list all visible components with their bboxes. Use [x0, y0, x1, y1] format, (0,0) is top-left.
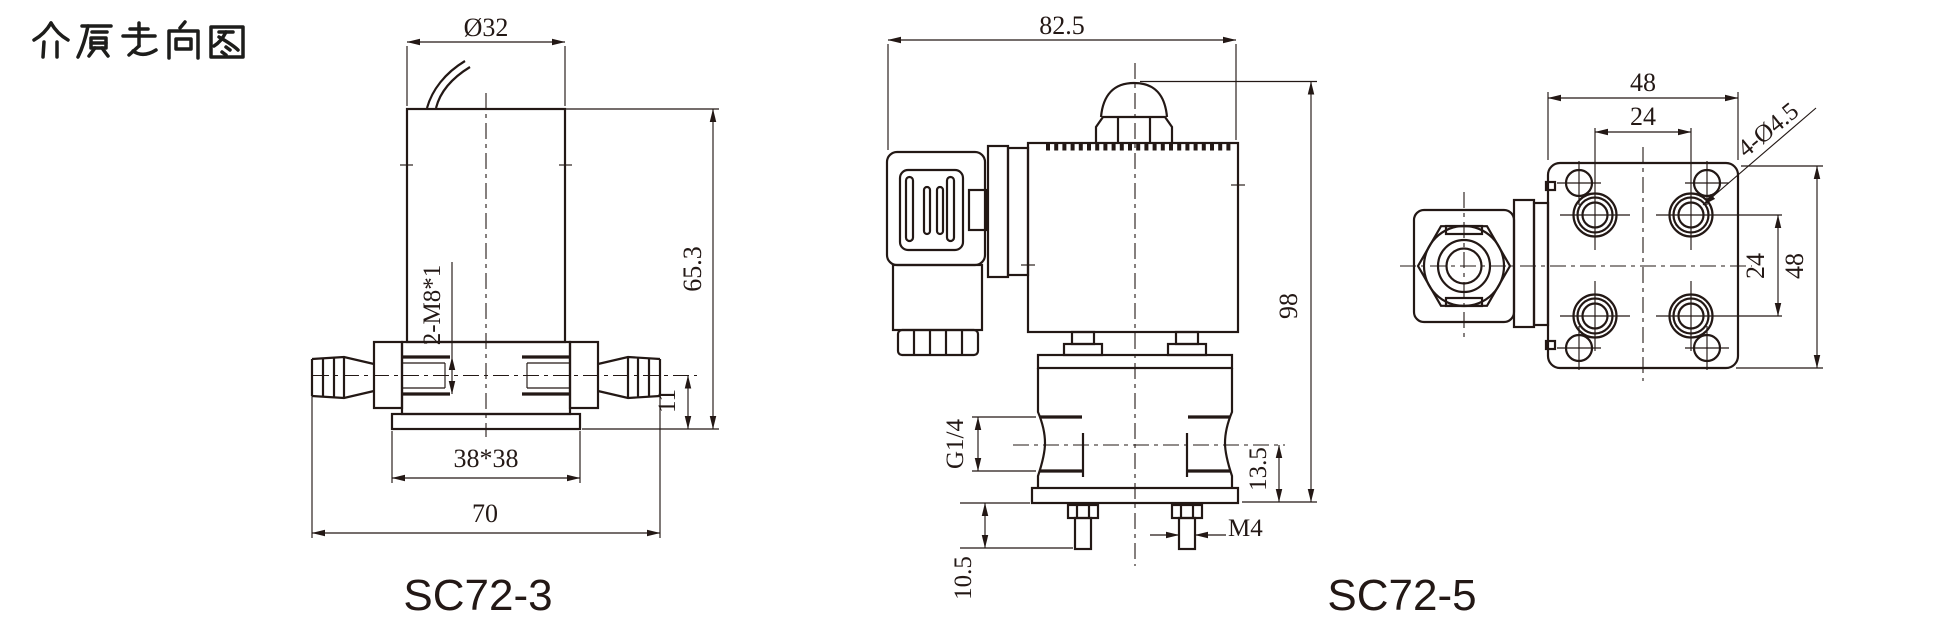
sc72-5-top-drawing: 48 24 4-Ø4.5 24 48	[1400, 68, 1823, 381]
cjk-char-jie	[34, 23, 68, 57]
dim-port-spacing-horizontal: 24	[1630, 102, 1656, 131]
dim-port-center-to-base: 13.5	[1245, 447, 1272, 491]
cjk-char-tu	[211, 27, 243, 57]
dim-port-thread: 2-M8*1	[419, 265, 446, 346]
cable-gland	[898, 330, 978, 355]
port-bottom-left	[1560, 281, 1630, 351]
dim-overall-width: 82.5	[1039, 11, 1085, 40]
sc72-5-front-drawing: 82.5 98 13.5 G1/4 10.5 M4	[887, 11, 1477, 620]
bracket	[1514, 200, 1534, 327]
sc72-3-drawing: Ø32 65.3 2-M8*1 11 38*38	[312, 13, 719, 620]
dim-base-square: 38*38	[454, 444, 519, 473]
lead-wire	[427, 61, 465, 108]
sc72-5-front-geometry	[887, 63, 1285, 566]
dim-port-center-height: 11	[654, 389, 681, 413]
sc72-5-top-dimensions: 48 24 4-Ø4.5 24 48	[1548, 68, 1823, 368]
left-hose-barb	[312, 357, 374, 398]
outlet-port	[1187, 417, 1230, 477]
dim-plate-width: 48	[1630, 68, 1656, 97]
dim-stud-thread: M4	[1228, 515, 1263, 542]
right-stud	[1172, 505, 1202, 549]
dim-port-thread: G1/4	[942, 419, 969, 470]
dim-stud-length: 10.5	[950, 556, 977, 600]
page-title	[34, 22, 243, 58]
dim-overall-height: 98	[1274, 293, 1303, 319]
drawing-canvas: Ø32 65.3 2-M8*1 11 38*38	[0, 0, 1960, 621]
dim-coil-diameter: Ø32	[464, 13, 509, 42]
cjk-char-zhi	[78, 26, 111, 57]
port-bottom-right	[1656, 281, 1782, 351]
left-stud	[1068, 505, 1098, 549]
sc72-5-front-dimensions: 82.5 98 13.5 G1/4 10.5 M4	[888, 11, 1317, 600]
dim-overall-width: 70	[472, 499, 498, 528]
sc72-3-geometry	[312, 61, 697, 437]
sc72-3-dimensions: Ø32 65.3 2-M8*1 11 38*38	[312, 13, 719, 538]
dim-port-spacing-vertical: 24	[1741, 253, 1770, 279]
dim-plate-height: 48	[1780, 253, 1809, 279]
coil-body	[1028, 143, 1238, 332]
media-flow-diagram-page: 介质走向图	[0, 0, 1960, 621]
port-top-left	[1560, 128, 1630, 250]
connector-base	[893, 265, 982, 330]
inlet-port	[1040, 417, 1083, 477]
dim-overall-height: 65.3	[678, 246, 707, 292]
sc72-5-top-geometry	[1400, 128, 1782, 381]
model-label-sc72-3: SC72-3	[403, 571, 552, 620]
dim-mount-holes: 4-Ø4.5	[1733, 98, 1805, 163]
right-hose-barb	[598, 357, 660, 398]
model-label-sc72-5: SC72-5	[1327, 571, 1476, 620]
cjk-char-xiang	[169, 22, 198, 58]
bracket	[988, 146, 1008, 277]
dome-nut	[1096, 83, 1172, 142]
cjk-char-zou	[123, 23, 156, 55]
